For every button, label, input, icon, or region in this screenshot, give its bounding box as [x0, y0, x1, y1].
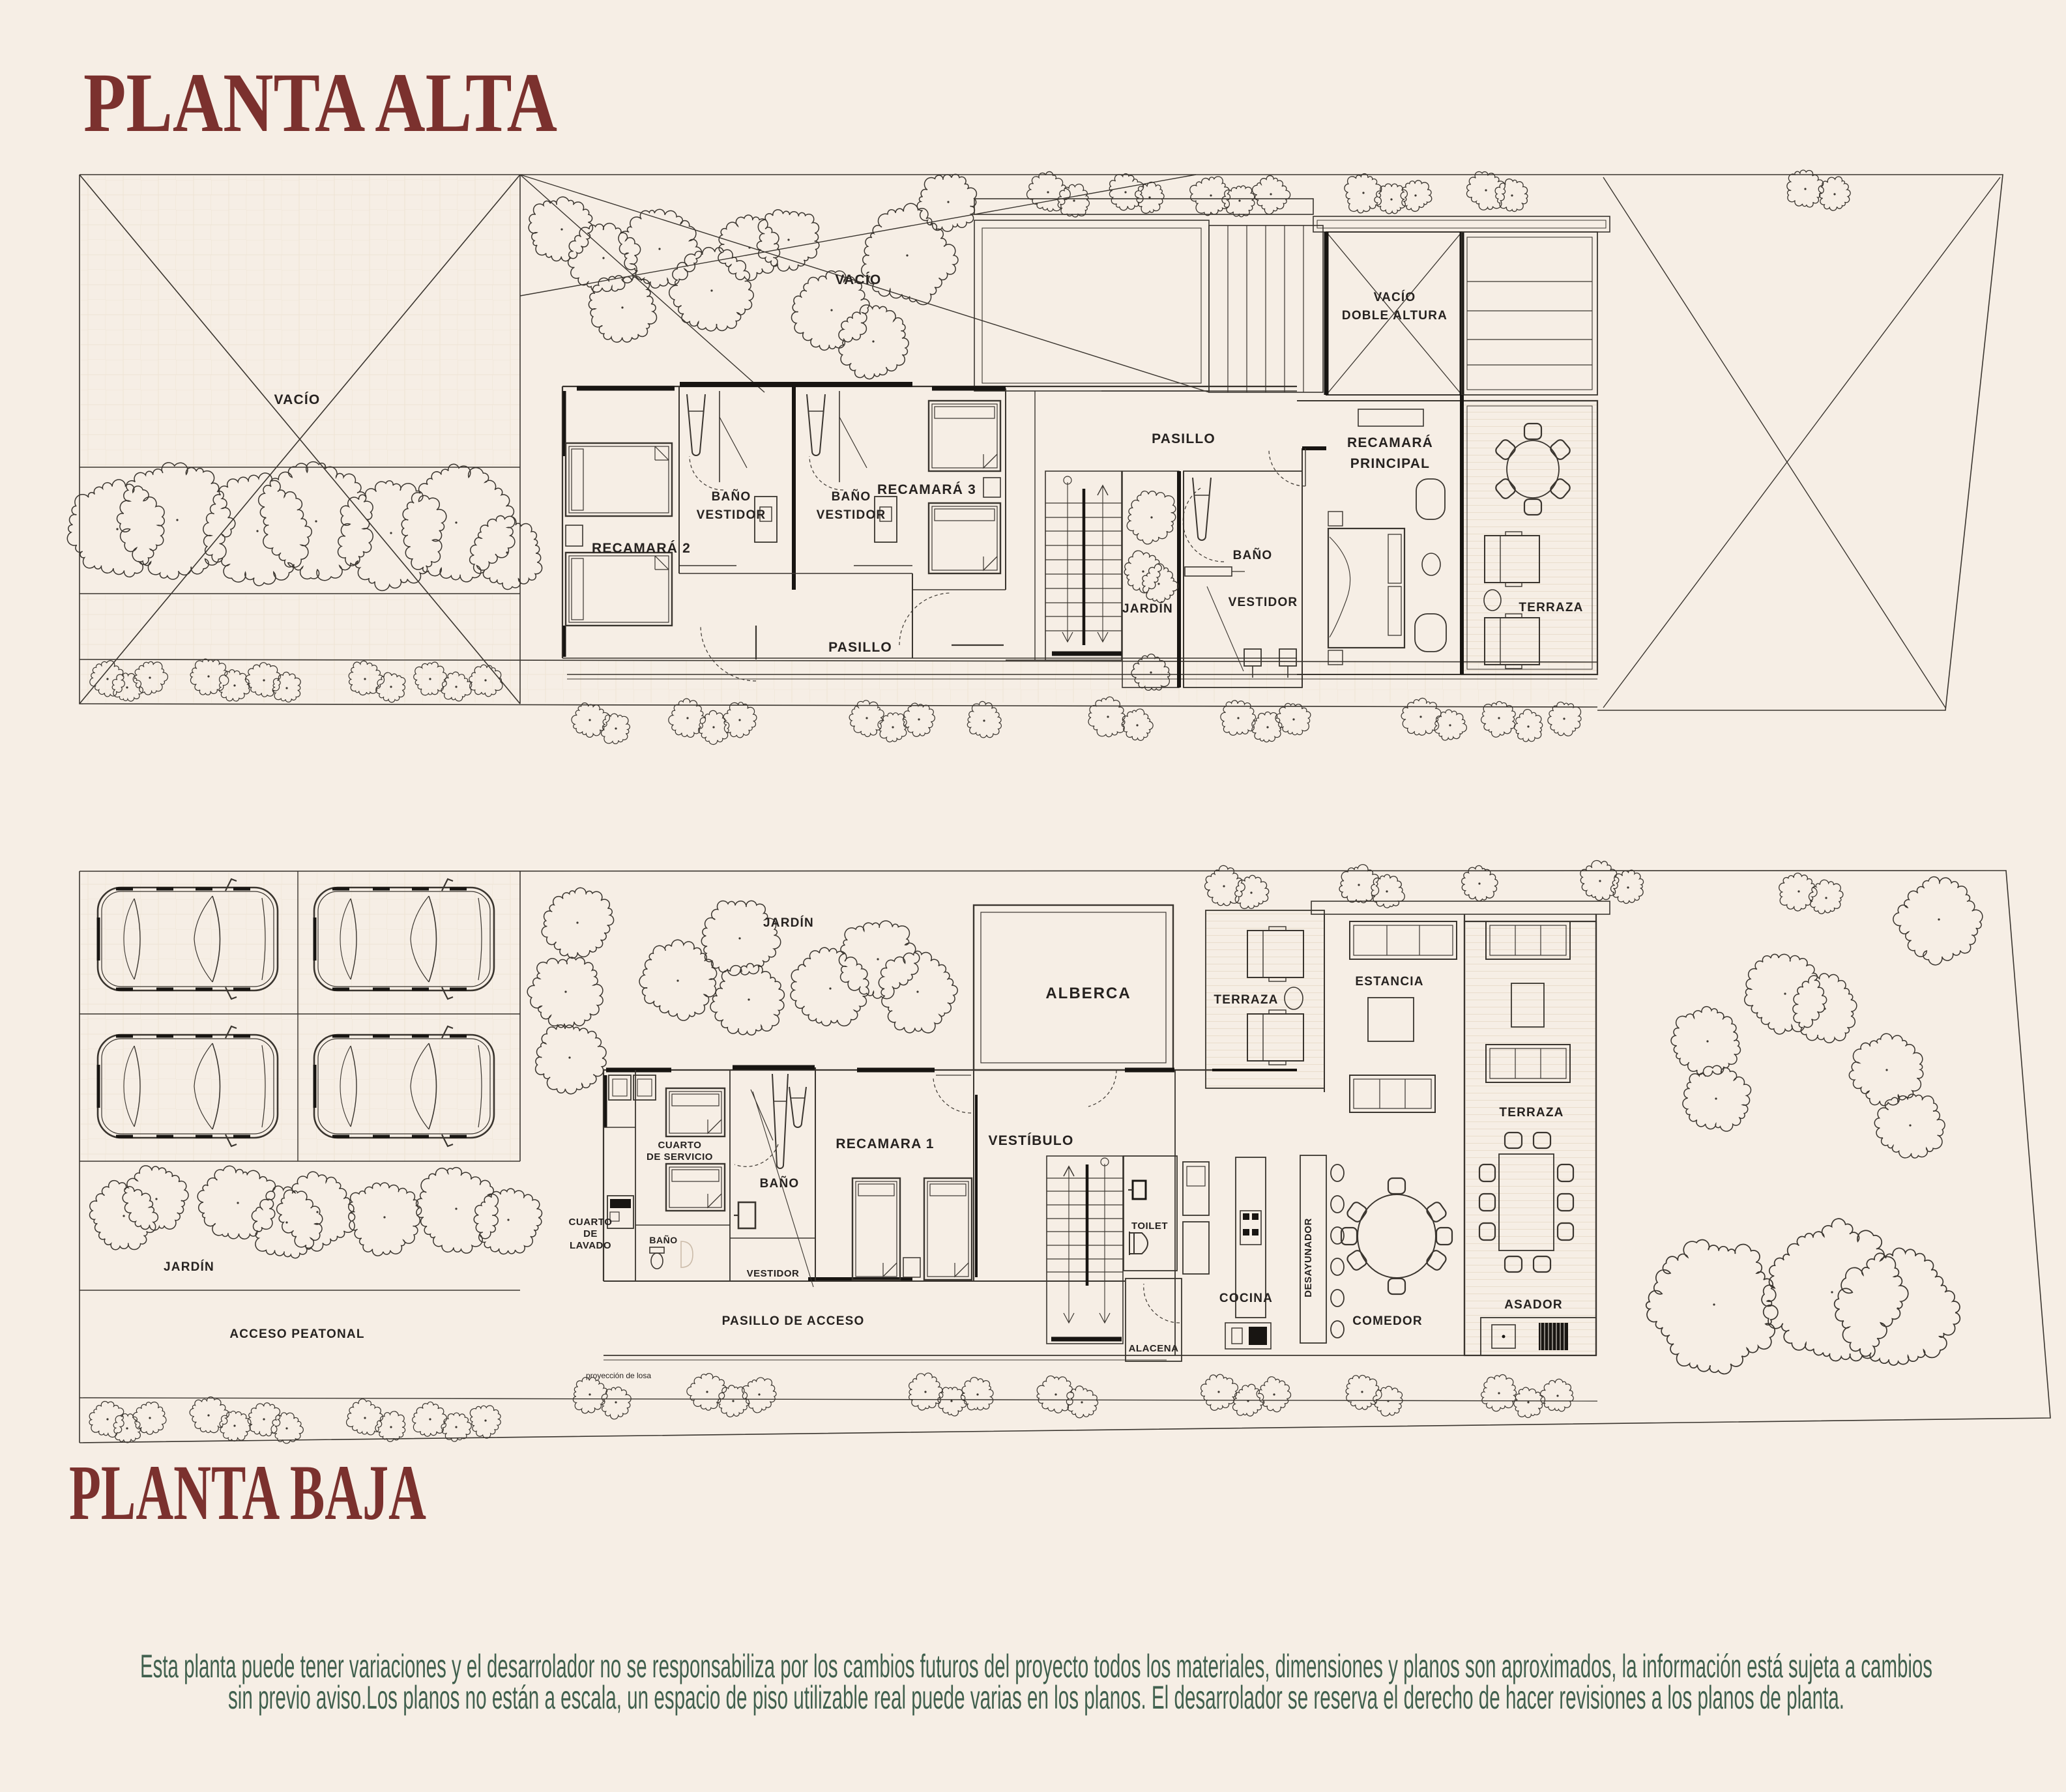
svg-text:ESTANCIA: ESTANCIA — [1355, 975, 1423, 989]
svg-text:VACÍO: VACÍO — [836, 272, 882, 287]
svg-text:PLANTA ALTA: PLANTA ALTA — [83, 56, 557, 150]
svg-text:sin previo aviso.Los planos no: sin previo aviso.Los planos no están a e… — [228, 1679, 1844, 1716]
svg-text:TERRAZA: TERRAZA — [1519, 601, 1583, 614]
svg-text:RECAMARÁ 2: RECAMARÁ 2 — [592, 541, 691, 556]
svg-text:DOBLE ALTURA: DOBLE ALTURA — [1342, 309, 1448, 323]
svg-text:COCINA: COCINA — [1219, 1292, 1273, 1305]
svg-text:VESTIDOR: VESTIDOR — [1229, 596, 1298, 609]
svg-text:BAÑO: BAÑO — [832, 489, 871, 504]
svg-text:BAÑO: BAÑO — [1233, 548, 1273, 562]
svg-text:ASADOR: ASADOR — [1504, 1298, 1563, 1312]
svg-text:LAVADO: LAVADO — [570, 1240, 611, 1251]
svg-text:VESTIDOR: VESTIDOR — [747, 1268, 800, 1279]
svg-text:VESTIDOR: VESTIDOR — [697, 508, 766, 522]
svg-text:RECAMARÁ: RECAMARÁ — [1347, 435, 1433, 450]
svg-text:VESTIDOR: VESTIDOR — [817, 508, 886, 522]
svg-text:TOILET: TOILET — [1131, 1221, 1168, 1232]
svg-text:PASILLO: PASILLO — [1152, 431, 1215, 446]
svg-text:JARDÍN: JARDÍN — [1122, 601, 1173, 616]
svg-text:VACÍO: VACÍO — [1374, 290, 1416, 304]
svg-text:BAÑO: BAÑO — [712, 489, 751, 504]
svg-text:DE SERVICIO: DE SERVICIO — [647, 1151, 713, 1163]
svg-text:TERRAZA: TERRAZA — [1499, 1106, 1564, 1120]
svg-text:VACÍO: VACÍO — [274, 392, 321, 407]
svg-text:PASILLO: PASILLO — [828, 640, 892, 655]
svg-text:JARDÍN: JARDÍN — [763, 916, 814, 930]
svg-text:PLANTA BAJA: PLANTA BAJA — [69, 1449, 426, 1537]
svg-text:TERRAZA: TERRAZA — [1214, 993, 1278, 1007]
svg-text:ACCESO PEATONAL: ACCESO PEATONAL — [229, 1327, 364, 1341]
svg-text:DESAYUNADOR: DESAYUNADOR — [1303, 1218, 1314, 1297]
svg-text:ALBERCA: ALBERCA — [1045, 985, 1131, 1002]
svg-text:DE: DE — [583, 1228, 598, 1239]
svg-text:CUARTO: CUARTO — [658, 1140, 702, 1151]
svg-text:ALACENA: ALACENA — [1129, 1343, 1179, 1354]
svg-text:PRINCIPAL: PRINCIPAL — [1350, 456, 1430, 471]
svg-text:CUARTO: CUARTO — [569, 1217, 613, 1228]
svg-text:PASILLO DE ACCESO: PASILLO DE ACCESO — [722, 1314, 865, 1328]
svg-text:VESTÍBULO: VESTÍBULO — [989, 1133, 1074, 1148]
svg-text:COMEDOR: COMEDOR — [1352, 1314, 1423, 1328]
svg-text:RECAMARÁ 3: RECAMARÁ 3 — [877, 482, 976, 497]
svg-text:JARDÍN: JARDÍN — [164, 1260, 214, 1274]
svg-text:RECAMARA 1: RECAMARA 1 — [836, 1136, 934, 1151]
svg-text:BAÑO: BAÑO — [649, 1234, 677, 1245]
